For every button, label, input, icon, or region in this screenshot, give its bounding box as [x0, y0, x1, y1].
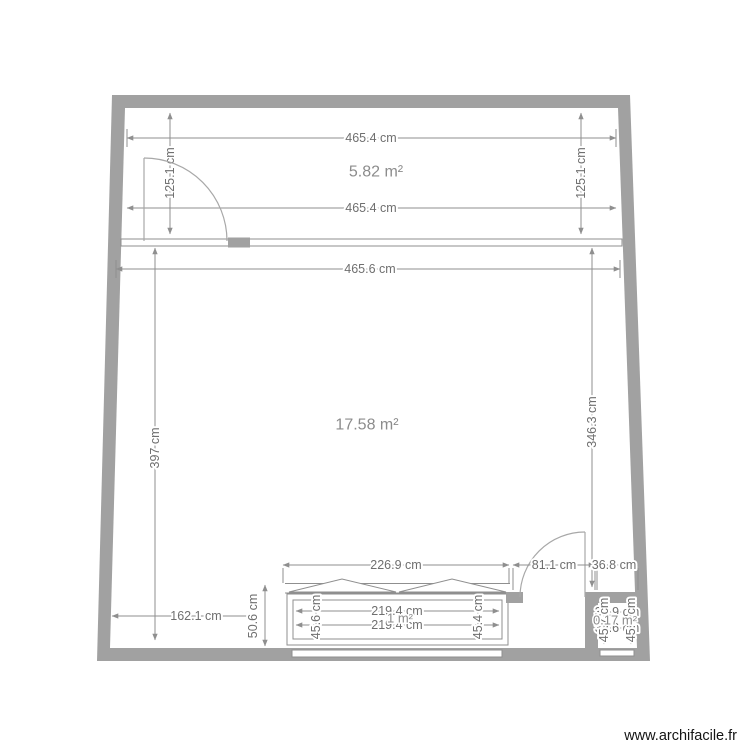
window-below-small-room[interactable]	[600, 650, 634, 656]
dim-closet-right[interactable]: 45.4 cm	[471, 595, 485, 639]
room-area-label: 0.17 m²	[593, 613, 638, 628]
dim-label[interactable]: 36.8 cm	[592, 558, 636, 572]
room-area-label: 5.82 m²	[349, 164, 404, 181]
floorplan-svg: 465.4 cm 465.4 cm 125.1 cm 125.1 cm 5.82…	[0, 0, 750, 750]
dim-label[interactable]: 45.6 cm	[309, 595, 323, 639]
dim-label[interactable]: 397 cm	[148, 428, 162, 469]
dim-closet-left[interactable]: 45.6 cm	[309, 595, 323, 639]
dim-label[interactable]: 465.6 cm	[344, 262, 395, 276]
dim-label[interactable]: 125.1 cm	[574, 147, 588, 198]
dim-label[interactable]: 465.4 cm	[345, 201, 396, 215]
watermark: www.archifacile.fr	[623, 728, 737, 744]
dim-label[interactable]: 346.3 cm	[585, 396, 599, 447]
room-area-label: 17.58 m²	[335, 417, 399, 434]
floorplan-canvas: 465.4 cm 465.4 cm 125.1 cm 125.1 cm 5.82…	[0, 0, 750, 750]
partition-wall[interactable]	[121, 238, 622, 248]
dim-label[interactable]: 162.1 cm	[170, 609, 221, 623]
room-area-label: 1 m²	[387, 611, 414, 626]
dim-label[interactable]: 81.1 cm	[532, 558, 576, 572]
window-below-closet[interactable]	[292, 650, 502, 657]
dim-label[interactable]: 125.1 cm	[163, 147, 177, 198]
dim-label[interactable]: 50.6 cm	[246, 594, 260, 638]
dim-label[interactable]: 465.4 cm	[345, 131, 396, 145]
dim-label[interactable]: 226.9 cm	[370, 558, 421, 572]
dim-label[interactable]: 45.4 cm	[471, 595, 485, 639]
